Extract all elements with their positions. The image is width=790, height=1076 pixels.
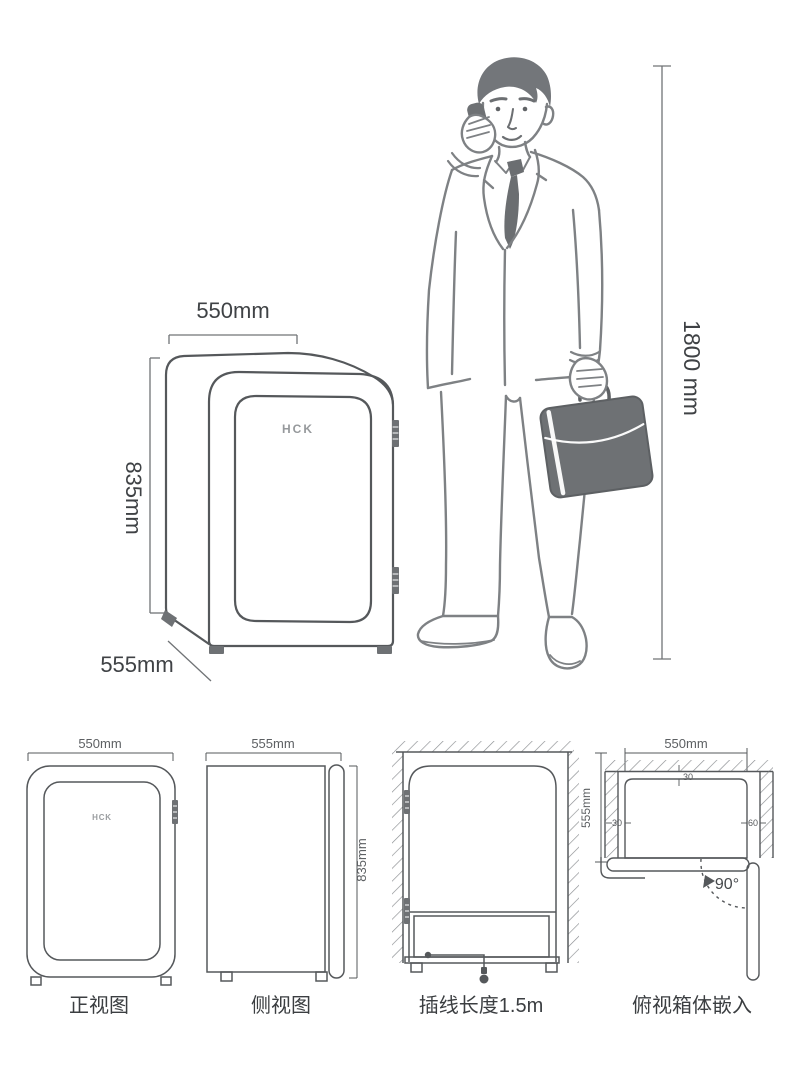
side-view — [206, 753, 357, 981]
fridge-door-outline — [209, 372, 393, 646]
front-view-brand: HCK — [92, 813, 112, 822]
wall-hatch-right2 — [760, 772, 773, 859]
product-dimension-diagram: HCK 550mm 835mm 555mm — [0, 0, 790, 1076]
fridge-body-outline — [166, 353, 393, 608]
front-view-dim-label: 550mm — [78, 736, 121, 751]
top-view-gap-back-label: 30 — [683, 772, 693, 782]
cord-view-caption: 插线长度1.5m — [419, 994, 543, 1017]
person-shoes — [418, 616, 587, 668]
wall-hatch-right — [568, 752, 579, 963]
wall-hatch-back — [605, 760, 773, 771]
front-view-caption: 正视图 — [69, 994, 129, 1017]
wall-hatch-left2 — [605, 772, 618, 859]
person-face-features — [491, 99, 534, 140]
dimension-width-main-label: 550mm — [196, 298, 269, 323]
fridge-perspective — [161, 353, 399, 654]
top-view-cabinet — [625, 779, 747, 858]
top-view-dim-width-label: 550mm — [664, 736, 707, 751]
dimension-height-main-label: 835mm — [121, 461, 146, 534]
side-view-dimension-depth — [206, 753, 341, 761]
top-view-caption: 俯视箱体嵌入 — [632, 994, 752, 1017]
side-view-caption: 侧视图 — [251, 994, 311, 1017]
top-view-gap-right-label: 60 — [748, 818, 758, 828]
fridge-brand-logo: HCK — [282, 422, 314, 436]
dimension-width-main — [169, 335, 297, 344]
top-view-dim-depth-label: 555mm — [579, 788, 593, 828]
fridge-feet — [161, 610, 392, 654]
wall-hatch-left — [392, 752, 403, 963]
front-view — [27, 753, 178, 985]
person-hair — [477, 57, 551, 107]
top-view-door-closed — [607, 858, 749, 871]
door-swing-arrow — [703, 875, 715, 888]
front-view-dimension — [28, 753, 173, 761]
diagram-canvas: HCK 550mm 835mm 555mm — [0, 0, 790, 1076]
briefcase — [539, 395, 654, 498]
dimension-person-height-label: 1800 mm — [679, 320, 705, 416]
top-view-door-angle-label: 90° — [715, 876, 739, 893]
dimension-depth-main-label: 555mm — [100, 652, 173, 677]
cord-view — [392, 741, 579, 984]
wall-hatch-top — [394, 741, 574, 752]
top-view-gap-left-label: 30 — [612, 818, 622, 828]
person-hand-briefcase — [570, 358, 607, 399]
dimension-height-main — [150, 358, 166, 613]
cord-view-fridge — [409, 766, 556, 962]
dimension-depth-main — [168, 641, 211, 681]
side-view-dim-depth-label: 555mm — [251, 736, 294, 751]
dimension-person-height — [653, 66, 671, 659]
top-view-door-open — [747, 863, 759, 980]
person-figure — [418, 57, 654, 668]
top-view — [595, 748, 773, 980]
side-view-dim-height-label: 835mm — [354, 838, 369, 881]
